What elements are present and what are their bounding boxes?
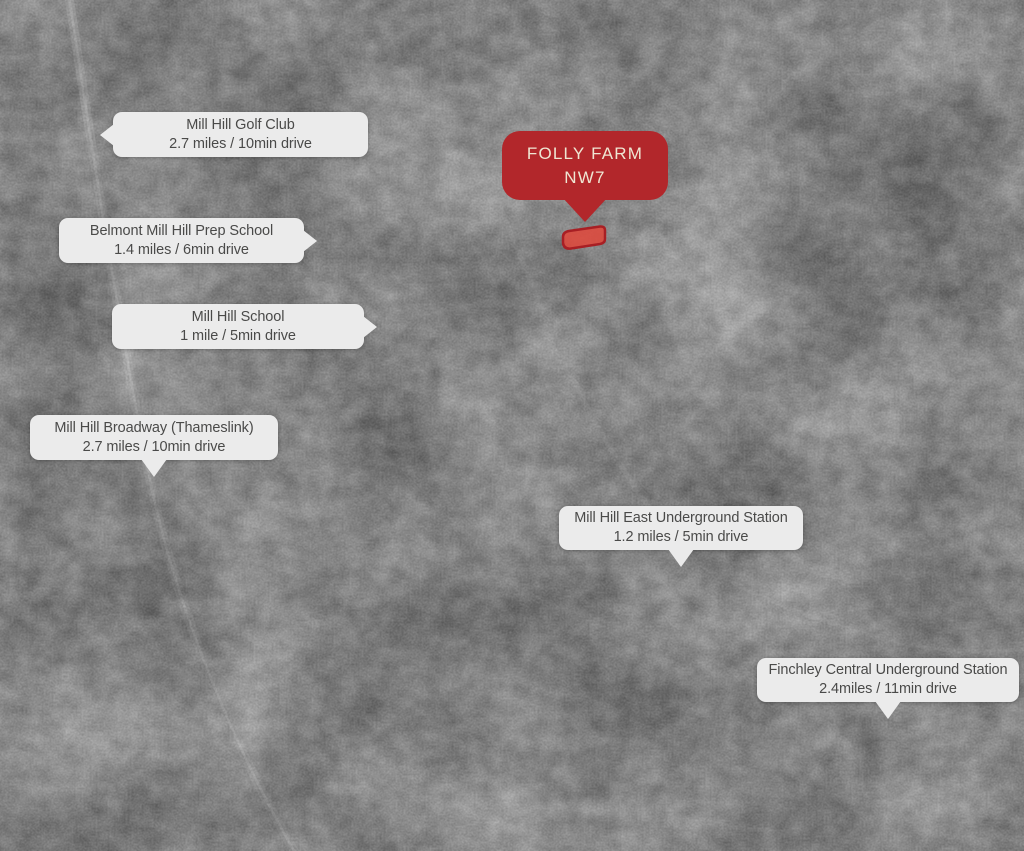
pointer-down-icon [562,197,608,222]
callout-title: Mill Hill East Underground Station [559,509,803,528]
callout-distance: 2.7 miles / 10min drive [113,135,368,154]
callout-title: Mill Hill Broadway (Thameslink) [30,419,278,438]
callout-mill-hill-east-underground: Mill Hill East Underground Station 1.2 m… [559,506,803,550]
callout-mill-hill-school: Mill Hill School 1 mile / 5min drive [112,304,364,349]
pointer-right-icon [303,230,317,252]
property-postcode: NW7 [502,166,668,190]
callout-distance: 1 mile / 5min drive [112,327,364,346]
pointer-down-icon [668,549,694,567]
property-boundary-outline [560,224,608,252]
callout-distance: 2.4miles / 11min drive [757,680,1019,699]
pointer-down-icon [141,459,167,477]
pointer-down-icon [875,701,901,719]
callout-belmont-mill-hill-prep-school: Belmont Mill Hill Prep School 1.4 miles … [59,218,304,263]
callout-folly-farm: FOLLY FARM NW7 [502,131,668,200]
callout-title: Mill Hill Golf Club [113,116,368,135]
map-canvas: FOLLY FARM NW7 Mill Hill Golf Club 2.7 m… [0,0,1024,851]
callout-title: Belmont Mill Hill Prep School [59,222,304,241]
callout-title: Mill Hill School [112,308,364,327]
callout-mill-hill-golf-club: Mill Hill Golf Club 2.7 miles / 10min dr… [113,112,368,157]
callout-distance: 1.4 miles / 6min drive [59,241,304,260]
callout-finchley-central-underground: Finchley Central Underground Station 2.4… [757,658,1019,702]
pointer-left-icon [100,124,114,146]
callout-distance: 2.7 miles / 10min drive [30,438,278,457]
property-name: FOLLY FARM [502,142,668,166]
callout-title: Finchley Central Underground Station [757,661,1019,680]
callout-mill-hill-broadway: Mill Hill Broadway (Thameslink) 2.7 mile… [30,415,278,460]
callout-distance: 1.2 miles / 5min drive [559,528,803,547]
pointer-right-icon [363,316,377,338]
